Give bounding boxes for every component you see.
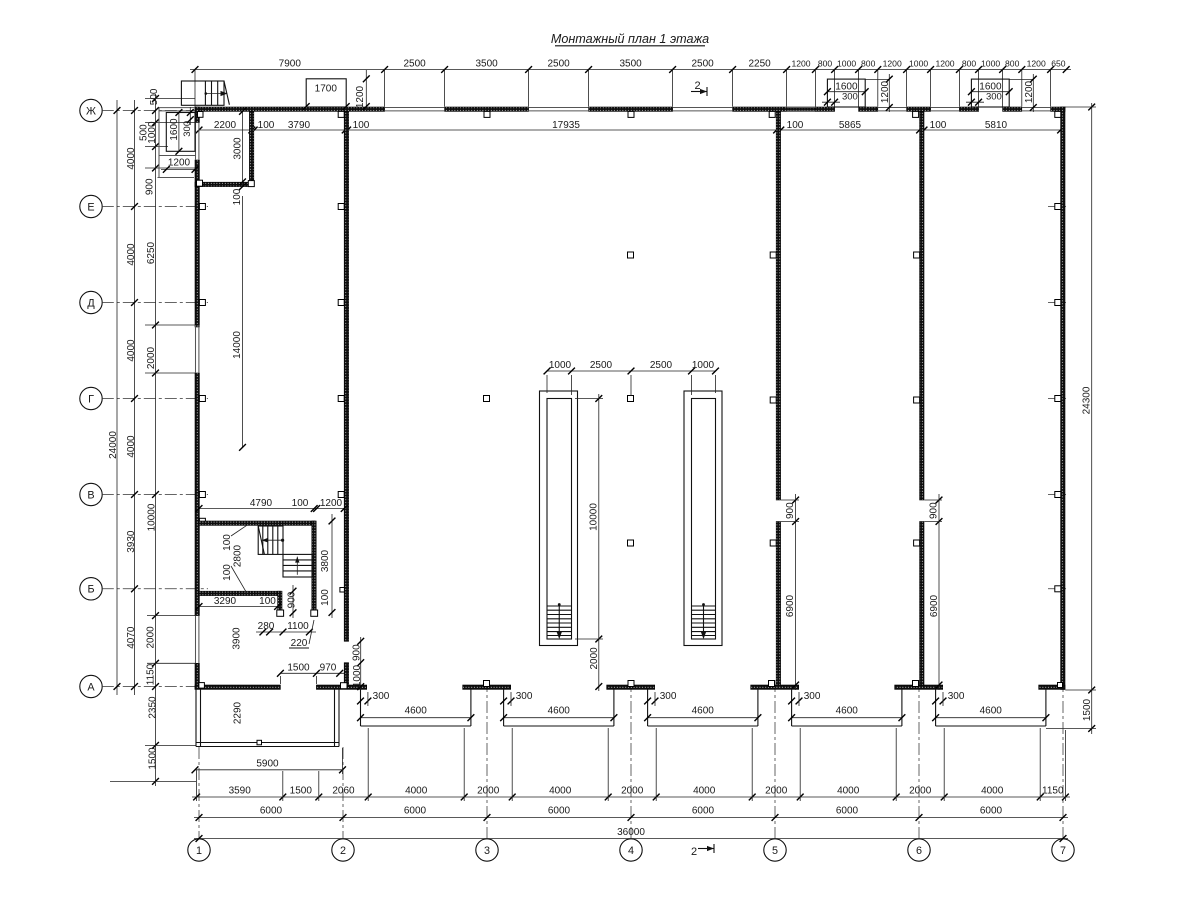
svg-text:1200: 1200: [883, 59, 902, 69]
svg-text:4000: 4000: [126, 339, 137, 362]
svg-text:4000: 4000: [837, 786, 860, 797]
svg-text:24300: 24300: [1082, 386, 1093, 414]
svg-text:4000: 4000: [126, 147, 137, 170]
svg-text:Ж: Ж: [86, 105, 96, 117]
svg-text:1000: 1000: [981, 59, 1000, 69]
svg-text:100: 100: [232, 188, 243, 205]
svg-text:А: А: [87, 681, 95, 693]
svg-text:3500: 3500: [619, 59, 642, 70]
svg-text:6900: 6900: [785, 594, 796, 617]
svg-text:900: 900: [145, 178, 156, 195]
svg-text:4600: 4600: [980, 706, 1003, 717]
svg-text:2500: 2500: [403, 59, 426, 70]
svg-text:2000: 2000: [765, 786, 788, 797]
svg-text:2: 2: [691, 846, 697, 858]
svg-text:6: 6: [916, 845, 922, 857]
svg-text:1150: 1150: [1042, 786, 1064, 797]
svg-text:1000: 1000: [352, 664, 363, 687]
svg-text:3900: 3900: [232, 627, 243, 650]
svg-text:300: 300: [373, 691, 390, 702]
svg-text:300: 300: [182, 121, 193, 137]
svg-text:300: 300: [804, 691, 821, 702]
svg-text:100: 100: [930, 120, 947, 131]
svg-text:3930: 3930: [126, 530, 137, 553]
svg-text:3000: 3000: [233, 137, 244, 160]
svg-text:3500: 3500: [475, 59, 498, 70]
svg-text:1700: 1700: [315, 84, 338, 95]
svg-text:100: 100: [258, 120, 275, 131]
svg-text:2800: 2800: [233, 544, 244, 567]
svg-text:4790: 4790: [250, 498, 273, 509]
svg-text:14000: 14000: [232, 331, 243, 359]
svg-text:500: 500: [149, 88, 160, 105]
svg-text:2350: 2350: [148, 696, 159, 719]
svg-text:100: 100: [292, 498, 309, 509]
svg-text:900: 900: [929, 502, 940, 519]
svg-text:800: 800: [861, 59, 876, 69]
svg-text:100: 100: [320, 589, 331, 606]
svg-text:4070: 4070: [126, 626, 137, 649]
svg-text:4600: 4600: [692, 706, 715, 717]
svg-text:6000: 6000: [836, 806, 859, 817]
svg-text:900: 900: [287, 591, 298, 608]
svg-text:100: 100: [259, 596, 276, 607]
svg-text:300: 300: [660, 691, 677, 702]
svg-text:3290: 3290: [214, 596, 237, 607]
svg-text:5: 5: [772, 845, 778, 857]
svg-text:1000: 1000: [837, 59, 856, 69]
svg-text:2250: 2250: [748, 59, 771, 70]
svg-text:6000: 6000: [548, 806, 571, 817]
svg-text:Г: Г: [88, 393, 94, 405]
svg-text:4000: 4000: [981, 786, 1004, 797]
svg-text:2500: 2500: [691, 59, 714, 70]
svg-text:300: 300: [948, 691, 965, 702]
svg-text:24000: 24000: [108, 431, 119, 459]
svg-text:800: 800: [962, 59, 977, 69]
svg-text:Д: Д: [87, 297, 95, 309]
svg-text:1500: 1500: [1082, 698, 1093, 721]
svg-text:2: 2: [694, 80, 700, 92]
svg-text:1150: 1150: [146, 663, 157, 685]
svg-text:4600: 4600: [548, 706, 571, 717]
svg-text:2000: 2000: [146, 346, 157, 369]
svg-text:5865: 5865: [839, 120, 862, 131]
svg-text:900: 900: [352, 644, 363, 661]
svg-text:7: 7: [1060, 845, 1066, 857]
svg-text:4600: 4600: [405, 706, 428, 717]
svg-text:1200: 1200: [880, 80, 891, 103]
svg-text:1200: 1200: [355, 85, 366, 108]
svg-text:1500: 1500: [287, 662, 310, 673]
svg-text:4000: 4000: [693, 786, 716, 797]
svg-text:4600: 4600: [836, 706, 859, 717]
svg-text:1000: 1000: [692, 360, 715, 371]
svg-text:1200: 1200: [791, 59, 810, 69]
svg-text:5810: 5810: [985, 120, 1008, 131]
svg-text:3590: 3590: [229, 786, 252, 797]
svg-text:3790: 3790: [288, 120, 311, 131]
svg-text:Монтажный план 1 этажа: Монтажный план 1 этажа: [551, 32, 709, 46]
svg-text:Е: Е: [87, 201, 94, 213]
svg-text:5900: 5900: [256, 759, 279, 770]
svg-text:7900: 7900: [279, 59, 302, 70]
svg-text:3800: 3800: [320, 549, 331, 572]
svg-text:2060: 2060: [332, 786, 355, 797]
svg-text:300: 300: [842, 91, 858, 102]
svg-text:1200: 1200: [935, 59, 954, 69]
svg-text:4000: 4000: [549, 786, 572, 797]
svg-text:100: 100: [787, 120, 804, 131]
svg-text:2200: 2200: [214, 120, 237, 131]
svg-text:4000: 4000: [126, 243, 137, 266]
svg-text:1000: 1000: [909, 59, 928, 69]
svg-text:17935: 17935: [552, 120, 580, 131]
svg-text:1200: 1200: [168, 158, 191, 169]
svg-text:6000: 6000: [980, 806, 1003, 817]
svg-text:1200: 1200: [1024, 80, 1035, 103]
svg-text:2500: 2500: [547, 59, 570, 70]
svg-text:2290: 2290: [233, 701, 244, 724]
svg-text:1100: 1100: [287, 621, 309, 632]
svg-text:2500: 2500: [590, 360, 613, 371]
svg-text:1500: 1500: [148, 747, 159, 770]
svg-text:4000: 4000: [405, 786, 428, 797]
svg-text:1: 1: [196, 845, 202, 857]
svg-text:1200: 1200: [320, 498, 343, 509]
svg-text:6000: 6000: [404, 806, 427, 817]
svg-text:2: 2: [340, 845, 346, 857]
svg-text:4000: 4000: [126, 435, 137, 458]
svg-text:800: 800: [1005, 59, 1020, 69]
svg-text:10000: 10000: [589, 503, 600, 531]
svg-text:1500: 1500: [290, 786, 313, 797]
svg-text:100: 100: [353, 120, 370, 131]
svg-text:800: 800: [818, 59, 833, 69]
svg-text:300: 300: [516, 691, 533, 702]
svg-text:6000: 6000: [692, 806, 715, 817]
svg-text:650: 650: [1051, 59, 1066, 69]
svg-text:6000: 6000: [260, 806, 283, 817]
svg-text:220: 220: [291, 638, 308, 649]
svg-text:970: 970: [320, 662, 337, 673]
svg-text:Б: Б: [87, 584, 94, 596]
svg-text:4: 4: [628, 845, 634, 857]
svg-text:2000: 2000: [477, 786, 500, 797]
svg-text:2000: 2000: [589, 647, 600, 670]
svg-text:1200: 1200: [1027, 59, 1046, 69]
svg-text:2500: 2500: [650, 360, 673, 371]
svg-text:2000: 2000: [621, 786, 644, 797]
svg-text:900: 900: [785, 502, 796, 519]
svg-text:6250: 6250: [146, 241, 157, 264]
svg-text:В: В: [87, 489, 94, 501]
svg-text:280: 280: [258, 621, 275, 632]
svg-text:36000: 36000: [617, 827, 645, 838]
svg-text:2000: 2000: [146, 626, 157, 649]
svg-text:6900: 6900: [929, 594, 940, 617]
svg-text:1000: 1000: [147, 121, 158, 144]
svg-text:100: 100: [222, 534, 233, 551]
svg-text:1600: 1600: [169, 118, 180, 141]
svg-text:2000: 2000: [909, 786, 932, 797]
svg-text:1000: 1000: [549, 360, 572, 371]
svg-text:300: 300: [986, 91, 1002, 102]
svg-text:3: 3: [484, 845, 490, 857]
svg-text:10000: 10000: [147, 503, 158, 531]
